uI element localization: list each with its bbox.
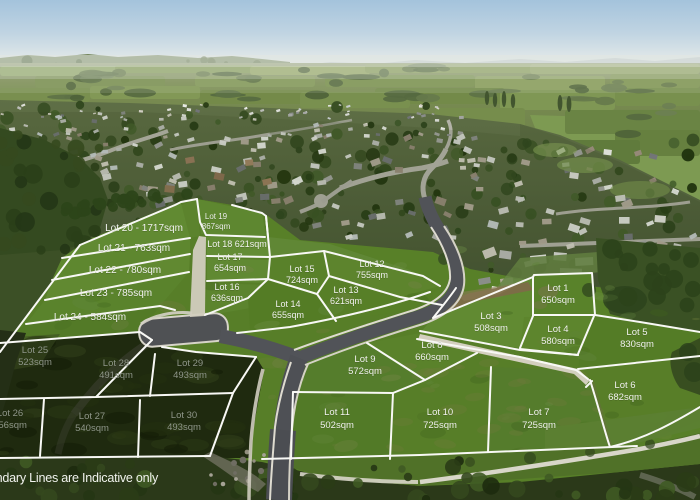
svg-text:Lot 15: Lot 15 (289, 264, 314, 274)
svg-text:725sqm: 725sqm (423, 420, 457, 431)
svg-text:755sqm: 755sqm (356, 270, 388, 280)
svg-text:621sqm: 621sqm (330, 296, 362, 306)
svg-text:Lot 24 - 584sqm: Lot 24 - 584sqm (54, 312, 126, 323)
svg-text:867sqm: 867sqm (202, 222, 231, 231)
svg-text:572sqm: 572sqm (348, 366, 382, 377)
svg-text:523sqm: 523sqm (18, 357, 52, 368)
svg-text:Lot 27: Lot 27 (79, 411, 105, 422)
svg-text:650sqm: 650sqm (541, 295, 575, 306)
svg-text:Lot 10: Lot 10 (427, 407, 453, 418)
svg-text:502sqm: 502sqm (320, 420, 354, 431)
svg-text:508sqm: 508sqm (474, 323, 508, 334)
svg-text:Lot 14: Lot 14 (275, 299, 300, 309)
svg-text:Lot 17: Lot 17 (217, 252, 242, 262)
svg-text:636sqm: 636sqm (211, 293, 243, 303)
svg-text:Lot 1: Lot 1 (547, 283, 568, 294)
svg-text:Lot 16: Lot 16 (214, 282, 239, 292)
svg-text:654sqm: 654sqm (214, 263, 246, 273)
svg-text:Lot 26: Lot 26 (0, 408, 23, 419)
svg-text:Lot 13: Lot 13 (333, 285, 358, 295)
svg-text:580sqm: 580sqm (541, 336, 575, 347)
svg-text:Lot 28: Lot 28 (103, 358, 129, 369)
svg-text:660sqm: 660sqm (415, 352, 449, 363)
svg-text:Boundary Lines are Indicative: Boundary Lines are Indicative only (0, 471, 159, 485)
svg-text:Lot 9: Lot 9 (354, 354, 375, 365)
svg-text:Lot 30: Lot 30 (171, 410, 197, 421)
svg-text:Lot 7: Lot 7 (528, 407, 549, 418)
svg-text:830sqm: 830sqm (620, 339, 654, 350)
svg-text:Lot 4: Lot 4 (547, 324, 568, 335)
svg-text:Lot 21 - 763sqm: Lot 21 - 763sqm (98, 243, 170, 254)
svg-text:Lot 22 - 780sqm: Lot 22 - 780sqm (89, 265, 161, 276)
svg-text:540sqm: 540sqm (75, 423, 109, 434)
svg-text:556sqm: 556sqm (0, 420, 27, 431)
svg-text:491sqm: 491sqm (99, 370, 133, 381)
svg-text:Lot 8: Lot 8 (421, 340, 442, 351)
svg-text:Lot 23 - 785sqm: Lot 23 - 785sqm (80, 288, 152, 299)
svg-text:Lot 12: Lot 12 (359, 259, 384, 269)
svg-text:Lot 20 - 1717sqm: Lot 20 - 1717sqm (105, 223, 183, 234)
svg-text:Lot 3: Lot 3 (480, 311, 501, 322)
svg-text:493sqm: 493sqm (173, 370, 207, 381)
svg-text:Lot 25: Lot 25 (22, 345, 48, 356)
svg-text:Lot 5: Lot 5 (626, 327, 647, 338)
svg-text:Lot 19: Lot 19 (205, 212, 228, 221)
svg-text:Lot 18 621sqm: Lot 18 621sqm (207, 239, 267, 249)
svg-text:725sqm: 725sqm (522, 420, 556, 431)
svg-text:682sqm: 682sqm (608, 392, 642, 403)
svg-text:Lot 6: Lot 6 (614, 380, 635, 391)
svg-text:Lot 11: Lot 11 (324, 407, 350, 418)
svg-text:493sqm: 493sqm (167, 422, 201, 433)
svg-text:Lot 29: Lot 29 (177, 358, 203, 369)
svg-text:724sqm: 724sqm (286, 275, 318, 285)
svg-text:655sqm: 655sqm (272, 310, 304, 320)
